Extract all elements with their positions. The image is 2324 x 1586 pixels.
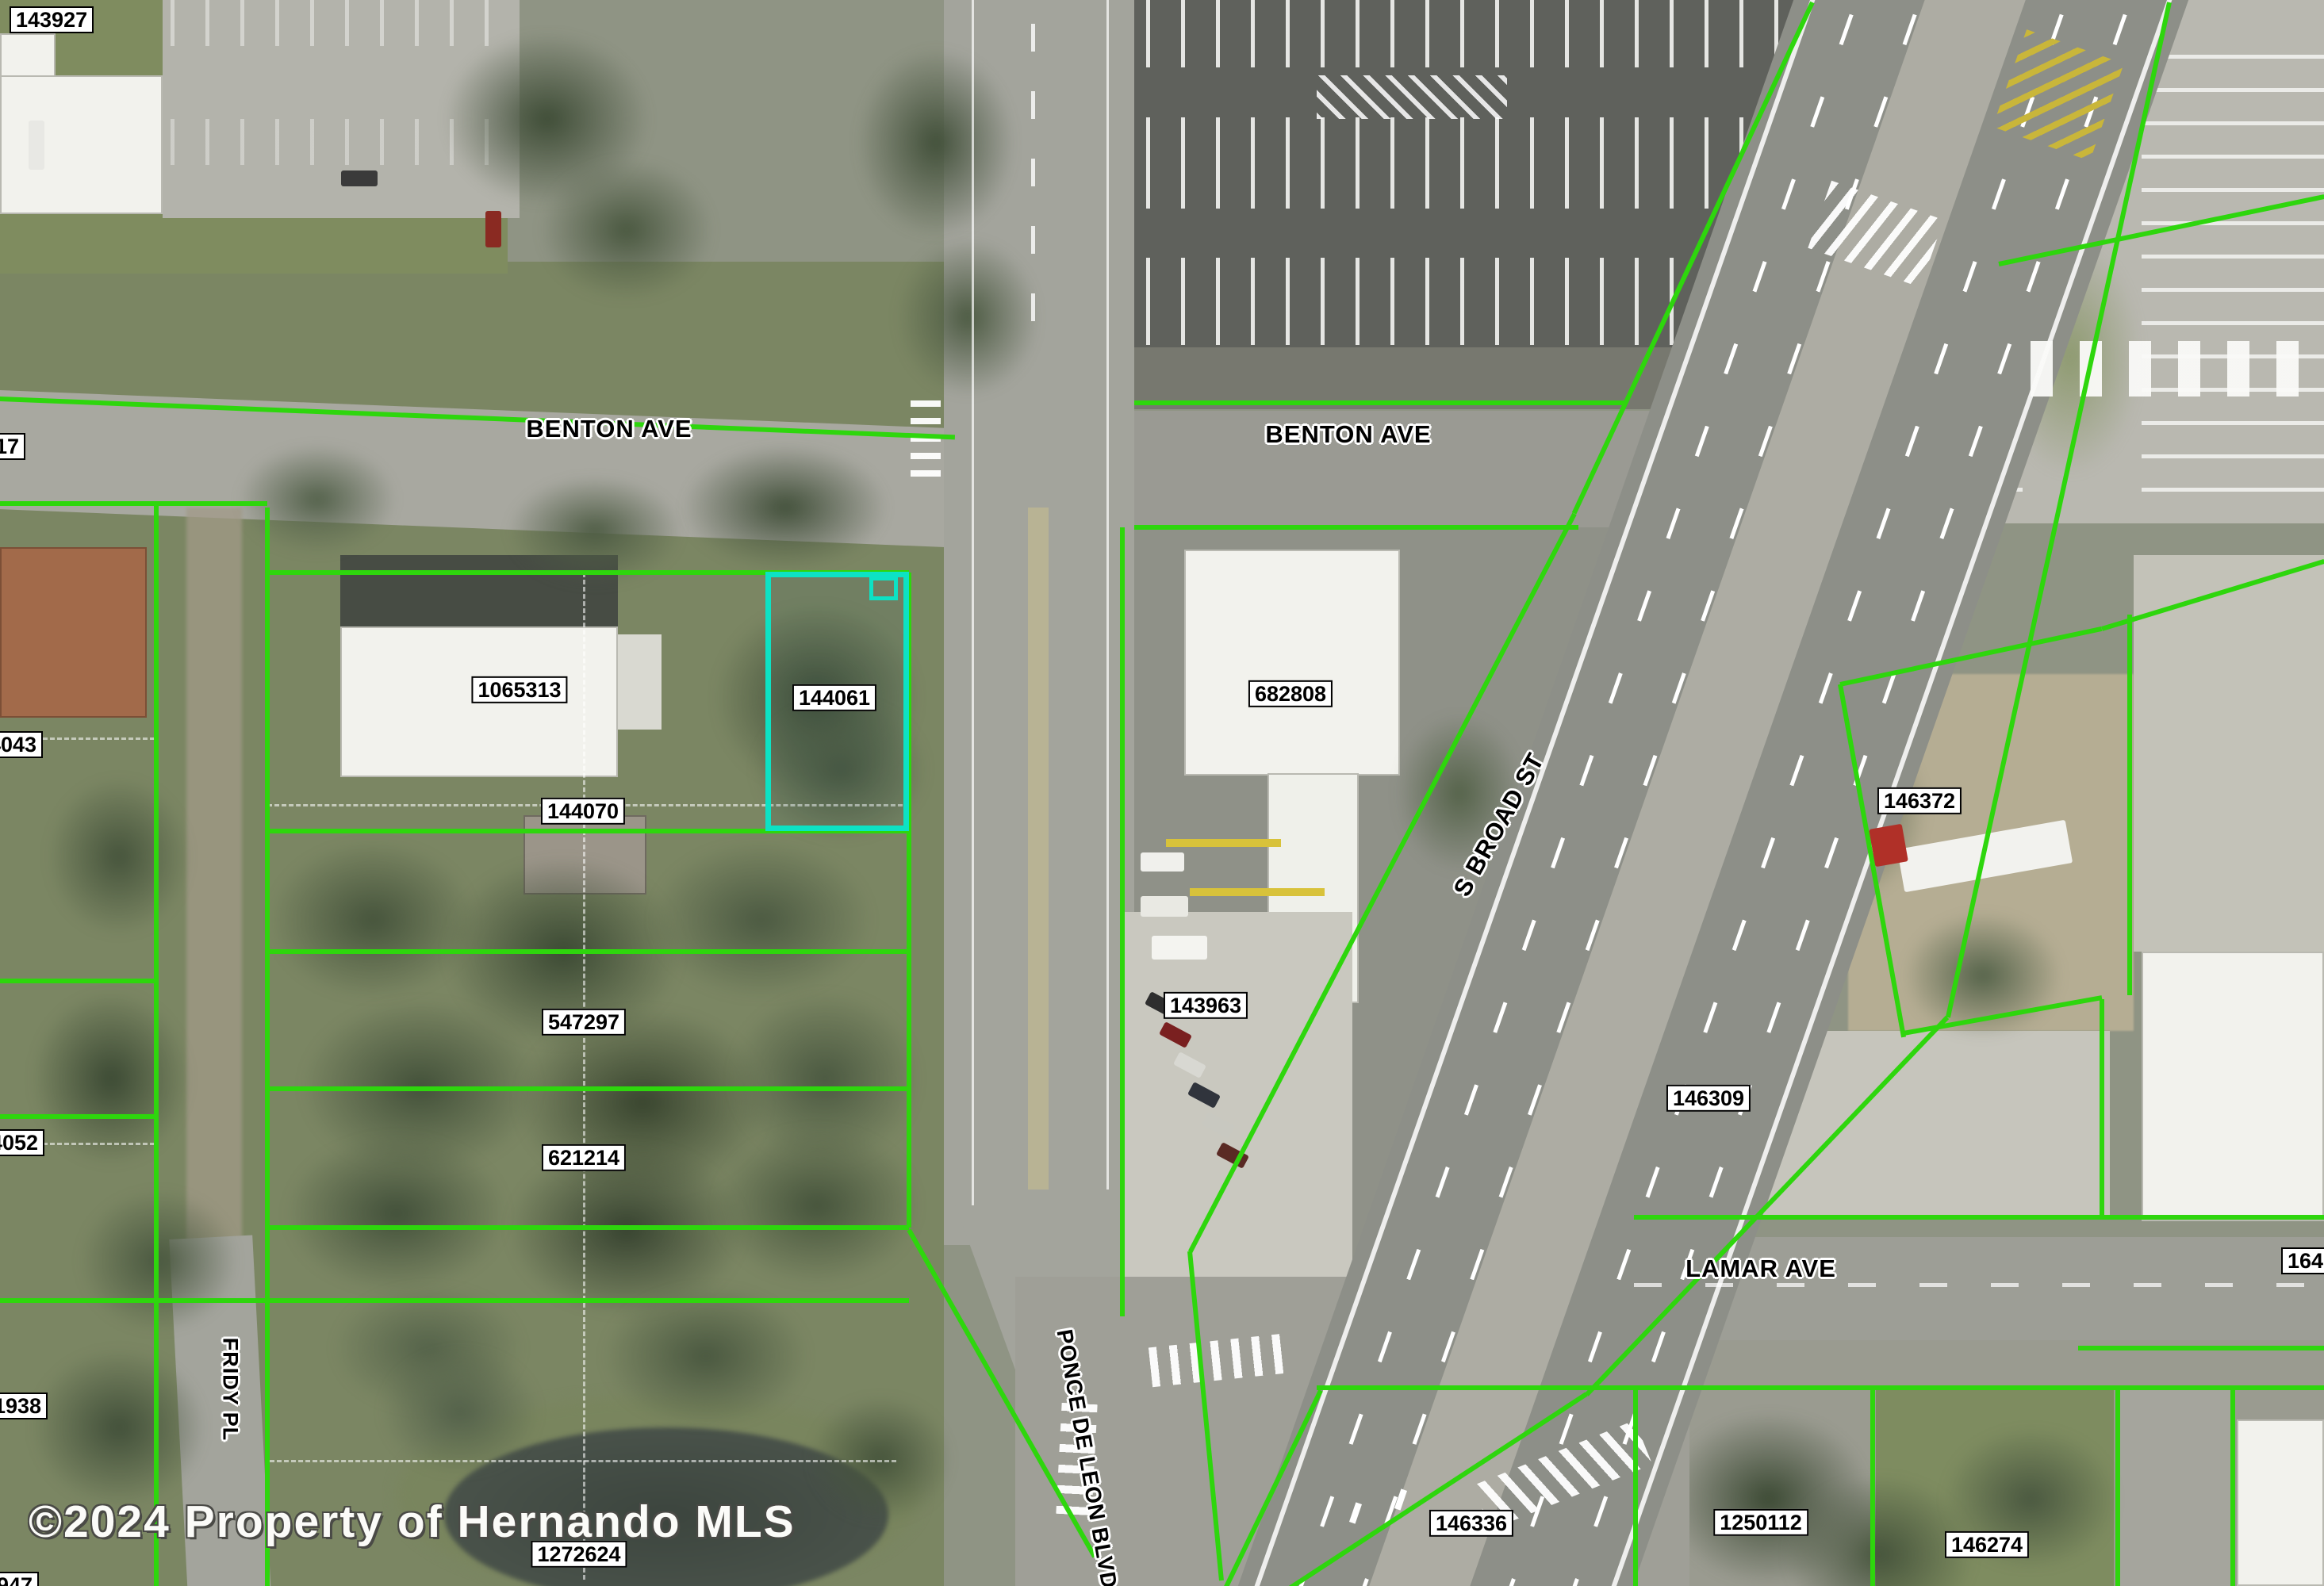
parking-stripes xyxy=(171,0,504,46)
trees xyxy=(539,159,714,301)
lane-line xyxy=(972,0,974,1205)
parcel-line xyxy=(2115,1388,2120,1586)
parcel-line xyxy=(1633,1388,1638,1586)
parcel-label: 146309 xyxy=(1666,1085,1751,1112)
se-street xyxy=(2118,1389,2233,1586)
dashed-line xyxy=(583,573,585,1580)
parcel-line xyxy=(1134,400,1626,405)
building xyxy=(2237,1419,2324,1586)
mls-watermark: ©2024 Property of Hernando MLS xyxy=(29,1496,796,1548)
trees xyxy=(32,1348,206,1507)
parcel-line xyxy=(154,504,159,1586)
truck xyxy=(1141,896,1188,917)
parcel-label-clipped: 4043 xyxy=(0,731,43,758)
parking-stripes xyxy=(1146,0,1797,67)
parcel-label: 547297 xyxy=(542,1009,626,1036)
median xyxy=(1028,508,1049,1189)
crosswalk xyxy=(911,400,941,484)
lane-dashes xyxy=(1031,24,1035,357)
building xyxy=(0,33,56,77)
building-682808 xyxy=(1184,550,1400,776)
trees xyxy=(381,1348,539,1475)
trees xyxy=(32,991,190,1166)
parcel-label-clipped: 4052 xyxy=(0,1129,44,1156)
parcel-label-clipped: 17 xyxy=(0,433,25,460)
dashed-line xyxy=(270,1460,896,1462)
parcel-line xyxy=(267,1086,909,1091)
parcel-label: 146336 xyxy=(1429,1510,1513,1537)
yellow-guide xyxy=(1166,839,1281,847)
dirt-track xyxy=(186,508,242,1245)
parcel-line xyxy=(267,949,909,954)
parcel-line xyxy=(1134,525,1578,530)
trees xyxy=(238,444,397,555)
parcel-label: 143927 xyxy=(10,6,94,33)
parcel-label: 1065313 xyxy=(471,676,567,703)
parcel-line xyxy=(2127,615,2132,995)
parcel-line xyxy=(267,1225,909,1230)
trees xyxy=(682,444,888,571)
lot-143963 xyxy=(1122,912,1352,1316)
street-label-lamar-ave: LAMAR AVE xyxy=(1685,1255,1836,1283)
parcel-label: 146274 xyxy=(1945,1531,2029,1558)
parcel-line xyxy=(0,501,267,506)
parcel-line xyxy=(1634,1215,2324,1220)
parcel-label-clipped: 16454 xyxy=(2281,1247,2324,1274)
parcel-label-clipped: 1938 xyxy=(0,1393,48,1419)
parcel-line xyxy=(2078,1346,2324,1350)
trees xyxy=(714,1126,920,1285)
street-label-benton-ave-west: BENTON AVE xyxy=(526,415,692,443)
trees xyxy=(48,777,190,936)
parking-stripes xyxy=(1146,117,1797,209)
parcel-label: 1250112 xyxy=(1713,1509,1808,1536)
parked-cars-row xyxy=(2031,341,2324,396)
parcel-line xyxy=(2230,1388,2235,1586)
aerial-parcel-map: 143927 1065313 144061 144070 547297 6212… xyxy=(0,0,2324,1586)
parcel-line xyxy=(2100,999,2104,1217)
lot-strip xyxy=(2134,555,2324,952)
van xyxy=(29,121,44,170)
parcel-line xyxy=(1120,527,1125,1316)
parking-stripes xyxy=(2142,32,2324,492)
car xyxy=(341,170,378,186)
parcel-line xyxy=(1317,1385,2324,1390)
parcel-label: 146372 xyxy=(1877,787,1962,814)
parcel-label: 144070 xyxy=(541,798,625,825)
truck-cab xyxy=(1869,824,1908,868)
trees xyxy=(857,48,1015,238)
parcel-line xyxy=(0,979,156,983)
building-wing xyxy=(618,634,662,730)
parcel-line xyxy=(0,1298,909,1303)
truck xyxy=(1141,852,1184,872)
trees xyxy=(270,841,476,999)
trees xyxy=(650,841,872,999)
car xyxy=(485,211,501,247)
highlighted-parcel-notch xyxy=(869,577,898,600)
parcel-label: 144061 xyxy=(792,684,876,711)
trees xyxy=(286,1134,508,1293)
hatch-zone xyxy=(1317,75,1507,119)
box-truck xyxy=(1152,936,1207,960)
lane-line xyxy=(1106,0,1109,1189)
parcel-label: 682808 xyxy=(1248,680,1333,707)
lane-dashes xyxy=(1634,1283,2324,1287)
trees xyxy=(809,1396,952,1523)
parcel-line xyxy=(1870,1388,1875,1586)
parcel-label-clipped: 947 xyxy=(0,1572,39,1586)
yellow-guide xyxy=(1190,888,1325,896)
building xyxy=(2142,952,2324,1221)
parcel-line xyxy=(265,508,270,1586)
parcel-label: 621214 xyxy=(542,1144,626,1171)
parcel-line xyxy=(0,1114,156,1119)
parcel-label: 143963 xyxy=(1164,992,1248,1019)
trees xyxy=(896,238,1039,396)
trees xyxy=(79,1189,238,1332)
building xyxy=(0,75,163,214)
street-label-fridy-pl: FRIDY PL xyxy=(218,1338,243,1442)
trees xyxy=(603,1285,809,1427)
street-label-benton-ave-east: BENTON AVE xyxy=(1265,420,1431,449)
building xyxy=(0,547,147,718)
